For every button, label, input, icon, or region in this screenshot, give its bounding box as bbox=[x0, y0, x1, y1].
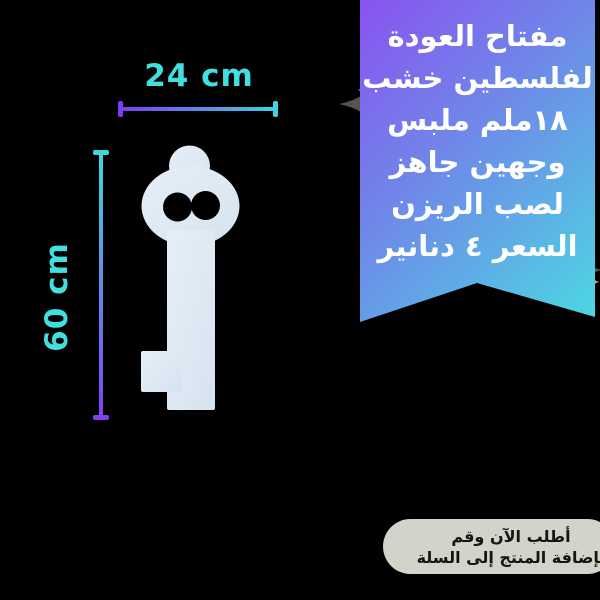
key-cutout-image bbox=[141, 146, 240, 411]
ribbon-line-thickness: ١٨ملم ملبس bbox=[360, 99, 595, 141]
cta-line: أطلب الآن وقم bbox=[383, 526, 600, 547]
ribbon-line-material: لفلسطين خشب bbox=[360, 57, 595, 99]
ribbon-line-title: مفتاح العودة bbox=[360, 15, 595, 57]
cta-line: بإضافة المنتج إلى السلة bbox=[383, 547, 600, 568]
ribbon-line-sides: وجهين جاهز bbox=[360, 141, 595, 183]
product-ad-image: 24 cm 60 cm bbox=[0, 0, 600, 600]
product-info-ribbon: مفتاح العودة لفلسطين خشب ١٨ملم ملبس وجهي… bbox=[360, 0, 595, 322]
ribbon-line-resin: لصب الريزن bbox=[360, 183, 595, 225]
product-description-text: مفتاح العودة لفلسطين خشب ١٨ملم ملبس وجهي… bbox=[360, 15, 595, 267]
ribbon-line-price: السعر ٤ دنانير bbox=[360, 225, 595, 267]
order-now-badge: أطلب الآن وقم بإضافة المنتج إلى السلة bbox=[383, 519, 600, 574]
